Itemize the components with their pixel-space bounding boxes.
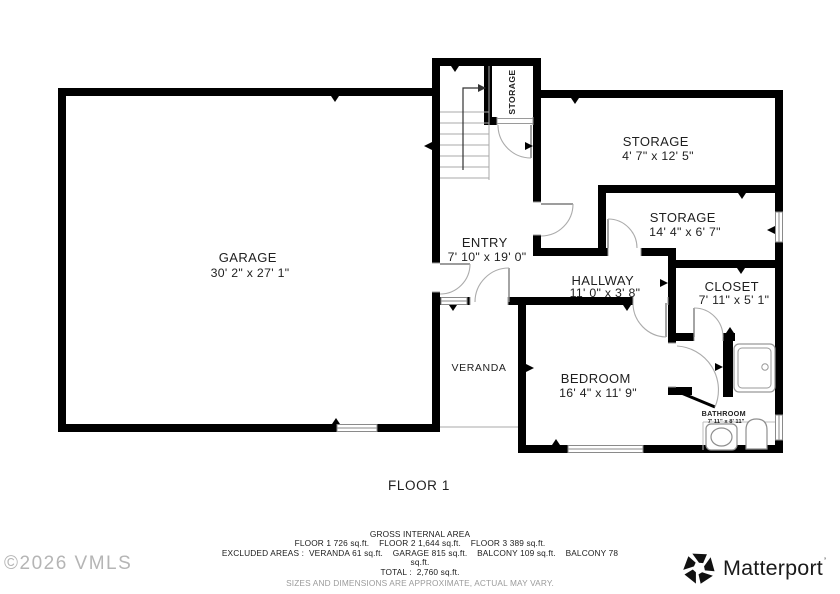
matterport-logo: Matterport ’ [681,550,826,586]
room-label-storage-lower: STORAGE 14' 4" x 6' 7" [649,209,721,239]
matterport-icon [681,550,717,586]
room-label-storage-upper: STORAGE 4' 7" x 12' 5" [622,133,694,163]
room-label-closet: CLOSET 7' 11" x 5' 1" [699,278,770,307]
room-label-bedroom: BEDROOM 16' 4" x 11' 9" [559,370,637,400]
shower [734,344,775,392]
bathroom-fixtures [703,344,775,450]
floor-title: FLOOR 1 [388,478,450,493]
room-label-garage: GARAGE 30' 2" x 27' 1" [211,249,290,280]
floorplan-page: GARAGE 30' 2" x 27' 1" ENTRY 7' 10" x 19… [0,0,840,594]
stair-direction-arrow [463,88,478,170]
mls-watermark: ©2026 VMLS [4,553,132,575]
room-label-hallway: HALLWAY 11' 0" x 3' 8" [570,272,641,300]
bathroom-door-leaf [674,390,715,407]
room-label-bathroom: BATHROOM 7' 11" x 8' 11" [702,403,751,425]
room-label-storage-closet: STORAGE [507,69,517,114]
shower-drain [762,364,768,370]
floorplan-drawing: GARAGE 30' 2" x 27' 1" ENTRY 7' 10" x 19… [0,0,840,520]
sink [746,419,767,449]
staircase [440,66,489,180]
room-label-veranda: VERANDA [452,362,507,374]
room-label-entry: ENTRY 7' 10" x 19' 0" [448,234,527,264]
trademark-mark: ’ [824,556,826,566]
walls [58,58,783,453]
matterport-wordmark: Matterport [723,556,823,581]
